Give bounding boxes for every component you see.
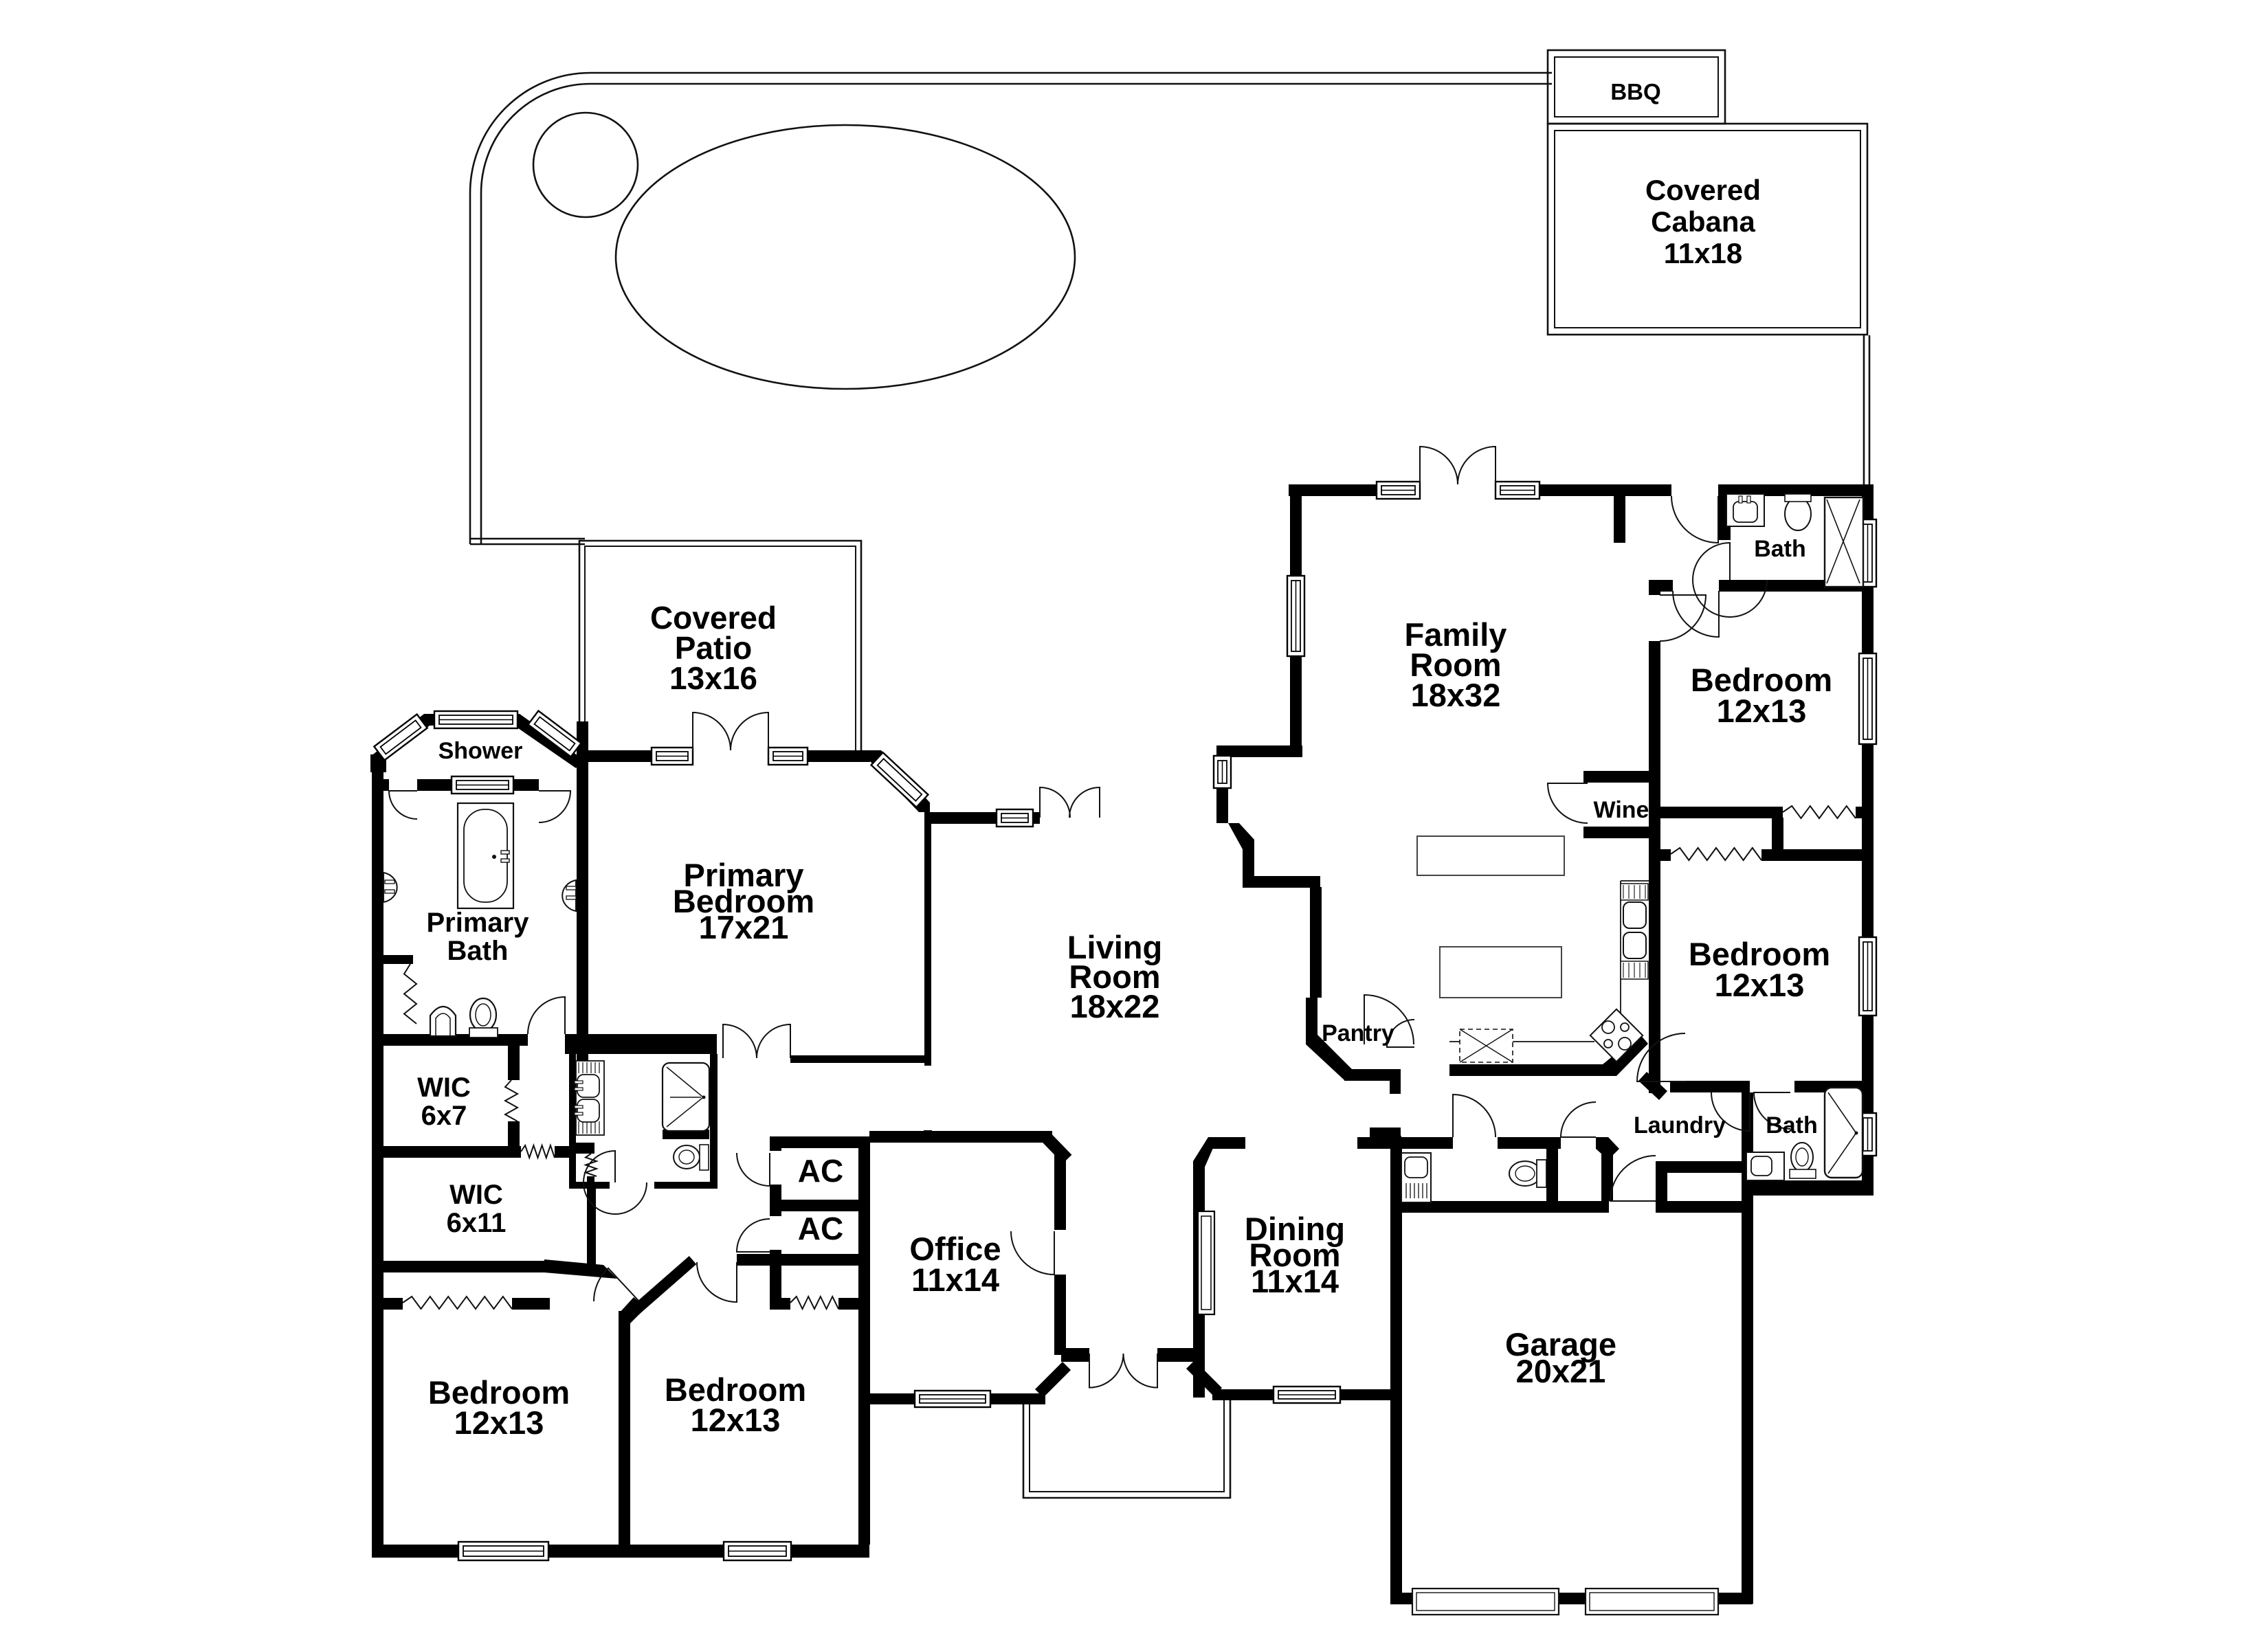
svg-text:Cabana: Cabana — [1651, 205, 1755, 238]
svg-text:11x14: 11x14 — [911, 1261, 999, 1298]
svg-text:6x7: 6x7 — [421, 1101, 467, 1131]
svg-text:Bath: Bath — [447, 936, 509, 966]
svg-text:6x11: 6x11 — [447, 1208, 507, 1238]
svg-text:13x16: 13x16 — [669, 660, 757, 696]
svg-text:AC: AC — [798, 1211, 843, 1246]
svg-text:11x18: 11x18 — [1664, 237, 1742, 269]
svg-text:12x13: 12x13 — [1715, 967, 1805, 1003]
svg-text:WIC: WIC — [417, 1073, 471, 1103]
svg-text:Wine: Wine — [1594, 797, 1649, 823]
svg-text:18x32: 18x32 — [1411, 677, 1501, 713]
svg-text:12x13: 12x13 — [454, 1404, 544, 1441]
svg-text:WIC: WIC — [449, 1180, 503, 1210]
svg-text:Bath: Bath — [1766, 1112, 1818, 1138]
svg-text:Covered: Covered — [1645, 174, 1761, 206]
svg-text:12x13: 12x13 — [1717, 693, 1807, 729]
svg-text:Shower: Shower — [438, 738, 523, 764]
svg-text:Pantry: Pantry — [1322, 1020, 1394, 1046]
svg-text:17x21: 17x21 — [699, 909, 789, 945]
svg-text:Primary: Primary — [427, 908, 530, 938]
svg-text:Laundry: Laundry — [1634, 1112, 1726, 1138]
svg-text:BBQ: BBQ — [1610, 79, 1660, 104]
svg-text:12x13: 12x13 — [691, 1402, 781, 1438]
svg-text:AC: AC — [798, 1153, 843, 1189]
svg-text:20x21: 20x21 — [1516, 1353, 1606, 1389]
svg-text:Bath: Bath — [1754, 536, 1806, 562]
svg-text:11x14: 11x14 — [1251, 1263, 1339, 1299]
svg-text:18x22: 18x22 — [1070, 988, 1160, 1024]
